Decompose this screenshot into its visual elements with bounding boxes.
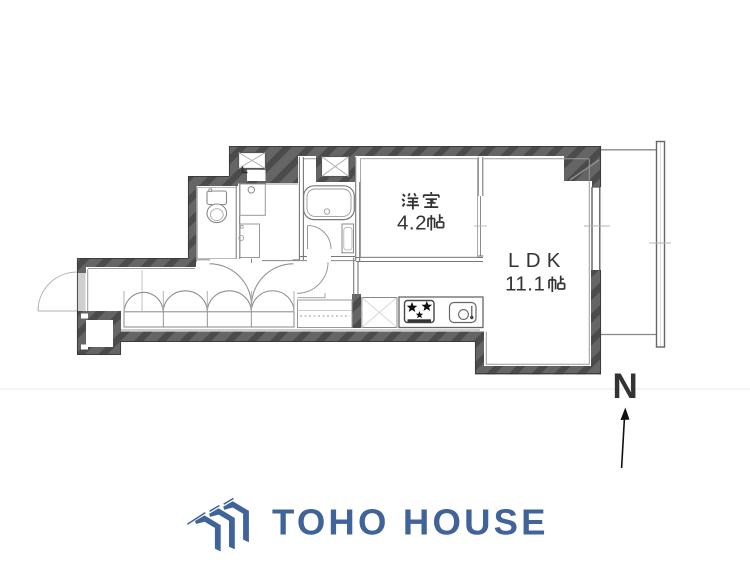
svg-text:N: N [613, 367, 638, 406]
svg-text:TOHO HOUSE: TOHO HOUSE [272, 502, 549, 543]
svg-text:LDK: LDK [508, 249, 567, 272]
svg-text:11.1: 11.1 [505, 273, 545, 296]
svg-text:4.2: 4.2 [397, 212, 427, 235]
